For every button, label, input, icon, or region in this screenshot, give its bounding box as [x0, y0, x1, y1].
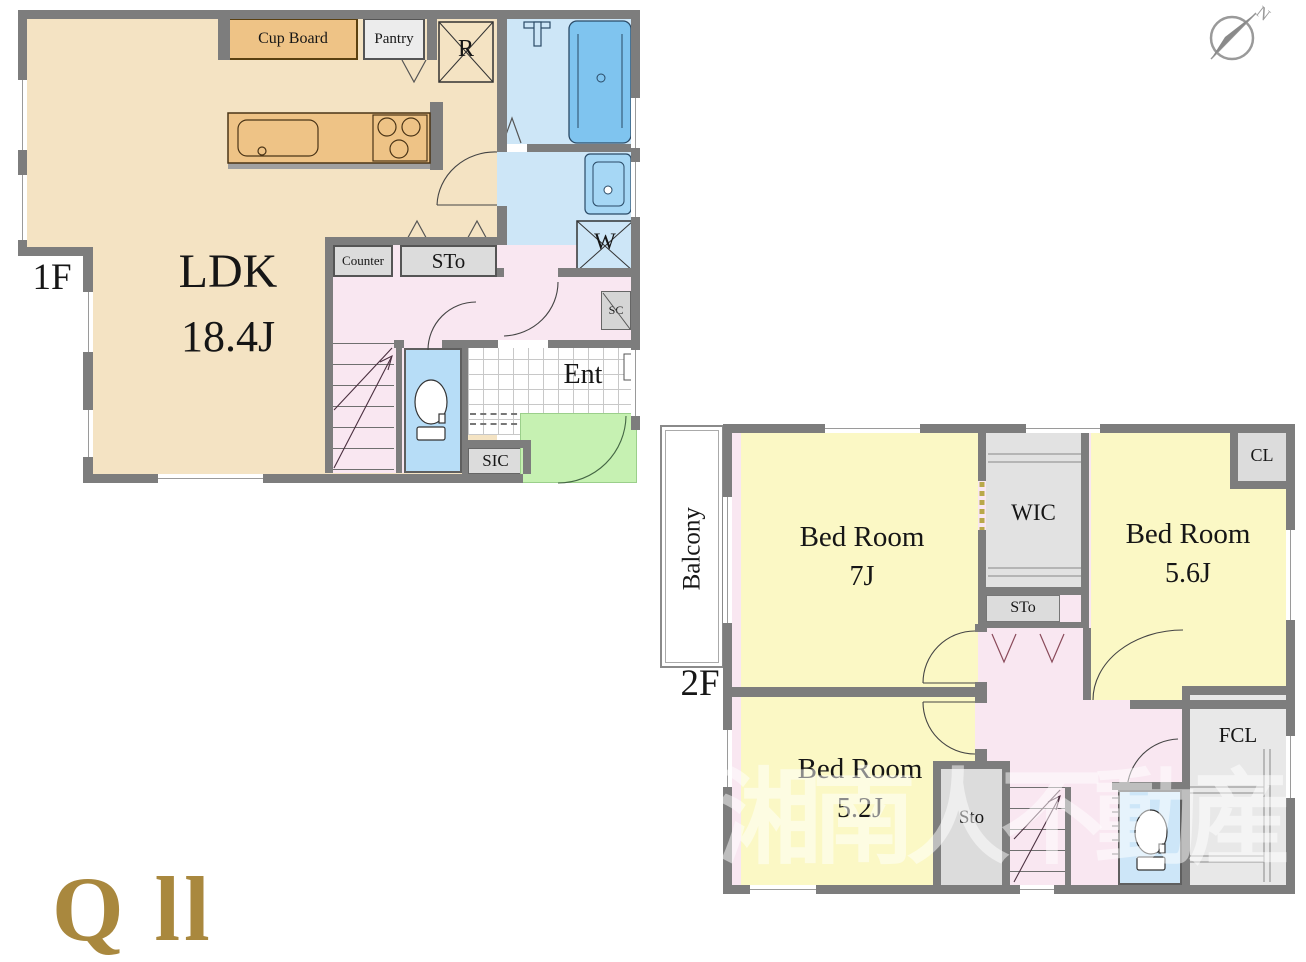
wall-hall-v-a	[975, 624, 987, 632]
window-1f-step-2	[83, 410, 93, 457]
ldk-size: 18.4J	[113, 313, 343, 361]
window-1f-left-1	[18, 80, 27, 150]
bedroom-main-name: Bed Room	[792, 522, 932, 554]
compass-north-label: N	[1253, 2, 1274, 25]
wall-sic-top	[468, 440, 531, 448]
wall-2f-top	[723, 424, 1295, 433]
ldk-name: LDK	[113, 246, 343, 299]
wall-bed1-wic-a	[978, 433, 986, 481]
wall-pantry-stub	[427, 10, 437, 60]
bedroom-main-label: Bed Room 7J	[792, 522, 932, 593]
wall-1f-right-stub	[631, 416, 640, 430]
bathtub-icon	[569, 21, 631, 143]
bedroom-third-door	[923, 702, 975, 754]
wall-bed1-wic-b	[978, 530, 986, 628]
window-1f-step-1	[83, 292, 93, 352]
floorplan-page: { "floor1": { "label": "1F", "ldk": { "n…	[0, 0, 1306, 898]
window-2f-right-1	[1286, 530, 1295, 620]
window-1f-bottom	[158, 474, 263, 483]
wall-ldk-hall-h	[325, 237, 497, 245]
floor1-plan: SIC SC Cup Board Pantry Counter STo	[18, 10, 640, 483]
front-door-arc	[558, 416, 626, 483]
balcony-door-opening	[723, 497, 732, 623]
floor2-label: 2F	[670, 664, 730, 705]
partial-gold-logo: Q ll	[52, 856, 214, 962]
window-2f-bottom-2	[1020, 885, 1054, 894]
ent-label: Ent	[543, 360, 623, 391]
floor1-label: 1F	[22, 258, 82, 299]
fridge-label: R	[439, 36, 493, 62]
wall-hall-ent-a	[394, 340, 404, 348]
wall-sic-porch	[523, 440, 531, 474]
wall-hall-ent-c	[548, 340, 640, 348]
faucet-icon	[524, 22, 550, 46]
front-door-opening	[631, 350, 640, 416]
wall-bath-wash	[527, 144, 640, 152]
watermark-text: 湘南人不動産	[718, 756, 1306, 881]
hall-door-arc-2	[504, 282, 558, 336]
wall-hall-v-b	[975, 682, 987, 703]
toilet-icon-1f	[415, 380, 447, 440]
wall-cupboard-stub	[218, 10, 230, 60]
bedroom-main-size: 7J	[792, 562, 932, 593]
wall-ldk-bath-upper	[497, 10, 507, 152]
bedroom-second-label: Bed Room 5.6J	[1118, 519, 1258, 590]
wic-label: WIC	[986, 500, 1081, 525]
window-1f-wash	[631, 162, 640, 217]
wall-bed1-bed3-divider	[732, 687, 978, 697]
wall-1f-bottom	[83, 474, 523, 483]
sc-diagonal	[603, 293, 630, 329]
wall-sto2-bottom	[978, 622, 1089, 628]
ldk-label-block: LDK 18.4J	[113, 246, 343, 361]
kitchen-island	[228, 102, 443, 170]
bedroom-second-size: 5.6J	[1118, 559, 1258, 590]
wall-ldk-bath-lower	[497, 206, 507, 245]
window-2f-top-2	[1026, 424, 1100, 433]
stairs-arrow-1f	[334, 348, 392, 468]
wall-bed2-bottom	[1130, 700, 1286, 709]
bedroom-second-name: Bed Room	[1118, 519, 1258, 551]
sto-fold-icon-2	[1040, 634, 1064, 662]
wall-wic-bed2	[1081, 433, 1089, 625]
wall-1f-top	[18, 10, 640, 19]
vanity-sink-icon	[585, 154, 631, 214]
wall-bed2-left-lower	[1083, 628, 1091, 700]
fcl-label: FCL	[1190, 724, 1286, 747]
wall-wash-hall-b	[558, 268, 640, 277]
wall-hall-ent-b	[442, 340, 498, 348]
wall-fcl-top	[1182, 686, 1286, 695]
bedroom-second-door-arc	[1093, 630, 1183, 700]
sto-fold-icon-1	[992, 634, 1016, 662]
wall-1f-step-h	[18, 247, 93, 256]
washer-label: W	[577, 229, 633, 254]
window-2f-top-1	[825, 424, 920, 433]
compass: N	[1198, 0, 1274, 76]
wall-cl-bottom	[1230, 481, 1286, 489]
window-1f-left-2	[18, 175, 27, 240]
kitchen-door-arc	[437, 152, 497, 205]
wall-wash-hall-a	[497, 268, 504, 277]
wall-wic-bottom	[978, 587, 1089, 595]
bedroom-main-door	[923, 631, 975, 683]
window-1f-bath	[631, 98, 640, 148]
wall-toilet-ent	[462, 348, 468, 474]
wall-toilet-stairs	[396, 348, 402, 473]
pantry-door-icon	[402, 60, 426, 82]
window-2f-bottom-1	[750, 885, 816, 894]
